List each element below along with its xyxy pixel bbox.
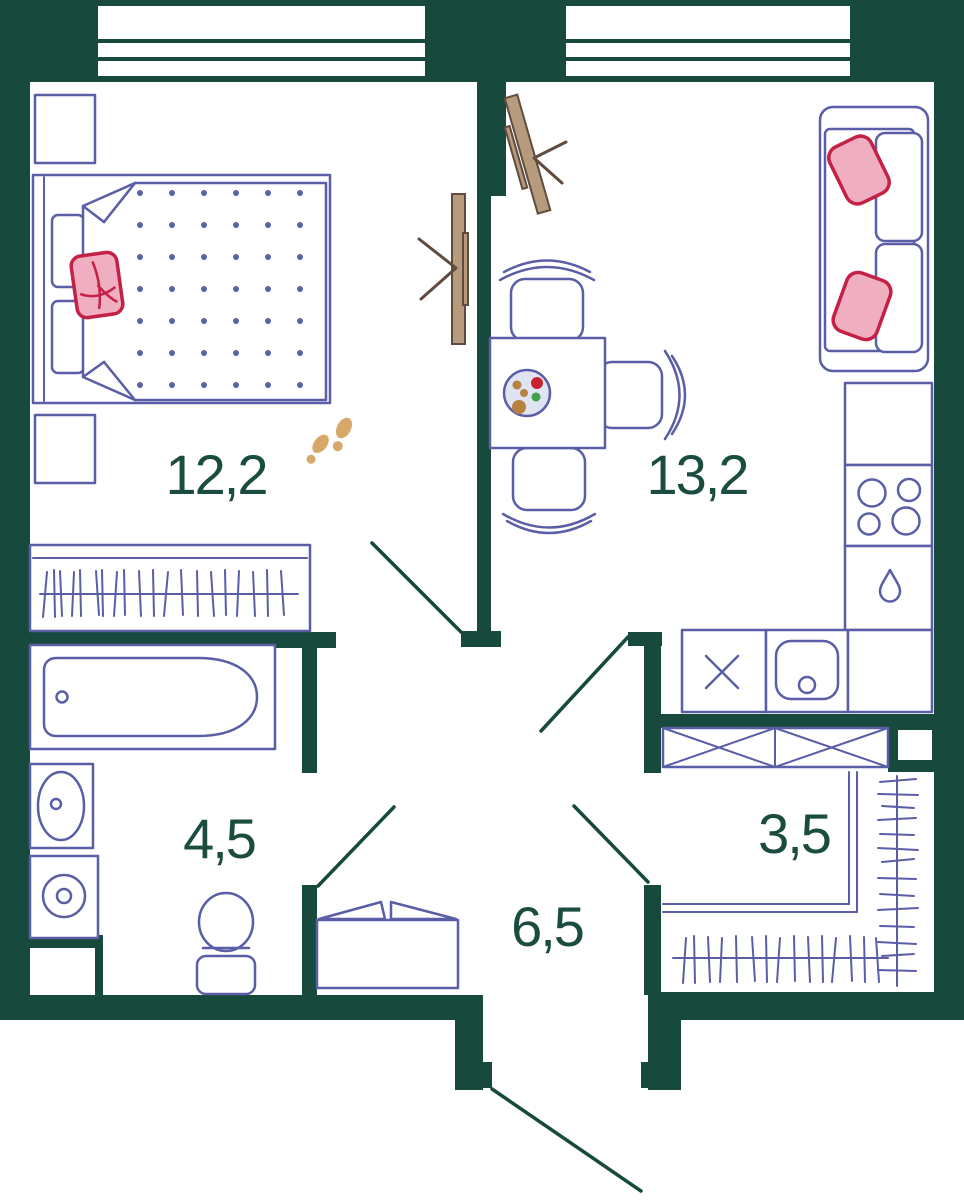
sofa [820,107,928,371]
bathroom-area-label: 4,5 [183,807,255,870]
living-window-sill-2 [566,61,850,76]
tub-basin [44,658,257,736]
floor-plan: 12,2 13,2 4,5 6,5 3,5 [0,0,964,1200]
wall-kitchen-closet [661,714,934,728]
wall-closet-hall-upper [644,632,661,773]
food-brown [520,389,528,397]
shoe-cabinet [317,902,458,988]
chair-top [511,279,583,341]
fridge-cabinet [845,383,932,465]
living-door-swing [541,637,628,731]
washer-door [57,889,71,903]
wall-left [0,0,30,1020]
bed-accent-pillow [70,251,124,319]
burner-icon [898,479,920,501]
hallway-area-label: 6,5 [511,895,583,958]
burner-icon [859,480,886,507]
chair-right-back [665,351,685,439]
sink-drain [51,799,61,809]
food-brown [513,381,522,390]
chair-right [598,362,662,428]
sliding-door-living [497,95,566,216]
food-green [532,393,541,402]
bedroom-window-sill-1 [98,43,425,57]
food-brown [512,400,526,414]
bedroom-window-pane [98,6,425,39]
floor-plan-page: 12,2 13,2 4,5 6,5 3,5 [0,0,964,1200]
wall-bottom-right [680,992,964,1020]
wall-bathroom-hall-lower [302,885,317,997]
nightstand-bottom [35,415,95,483]
bathroom-duct-wall-side [95,948,103,997]
entrance-door-swing [492,1089,641,1191]
crossed-shelf [663,728,888,767]
wall-bedroom-living-top [477,82,506,196]
entrance-jamb-right [648,992,681,1090]
toilet-bowl [199,893,253,951]
wardrobe-bedroom [30,545,310,631]
wall-bedroom-living-foot [461,631,501,647]
sink-drain [799,677,815,693]
sink-cabinet [845,546,932,630]
plate-icon [504,370,550,416]
stove [845,465,932,546]
washing-machine [30,856,98,938]
slide-direction-arrow [419,239,456,299]
bathroom-sink [30,764,93,848]
living-window-pane [566,6,850,39]
dining-table [490,338,605,448]
chair-bottom-back [503,514,595,533]
hangers [683,936,879,983]
burner-icon [859,514,880,535]
bathtub [30,645,275,749]
burner-icon [893,508,920,535]
toilet-tank [197,956,255,994]
living-window-sill-1 [566,43,850,57]
kitchen-counters [682,383,932,712]
hallway [317,902,458,988]
closet-rail-horizontal [673,936,888,983]
wall-bathroom-hall-upper [302,645,317,773]
closet-duct-shaft [898,730,932,760]
tub-drain [57,692,68,703]
food-red [531,377,543,389]
mattress-dots [126,179,316,397]
toilet [197,893,255,994]
entrance-jamb-right-notch [641,1062,649,1088]
corner-counter [848,630,932,712]
wall-bottom-left [0,995,483,1020]
cabinet-body [317,920,458,988]
living-area-label: 13,2 [647,443,748,506]
footprints-icon [302,415,357,466]
closet-rail-vertical [878,776,918,986]
wall-right [934,0,964,1020]
bathroom-door-swing [318,807,394,886]
bedroom [30,95,356,631]
bedroom-area-label: 12,2 [166,443,267,506]
chair-top-back [500,261,594,281]
cabinet-flaps [319,902,456,919]
entrance-jamb-left-notch [483,1062,492,1088]
entrance-jamb-left [455,1018,483,1090]
closet-area-label: 3,5 [758,802,830,865]
chair-bottom [513,448,585,510]
bedroom-door-swing [372,543,461,632]
nightstand-top [35,95,95,163]
sliding-door-bedroom [419,194,468,344]
double-bed [33,175,330,403]
living-kitchen [490,107,932,712]
kitchen-sink [766,630,848,712]
closet-door-swing [574,806,648,882]
wall-closet-hall-lower [644,885,661,995]
sliding-panel-leaf [463,233,468,305]
bedroom-window-sill-2 [98,61,425,76]
